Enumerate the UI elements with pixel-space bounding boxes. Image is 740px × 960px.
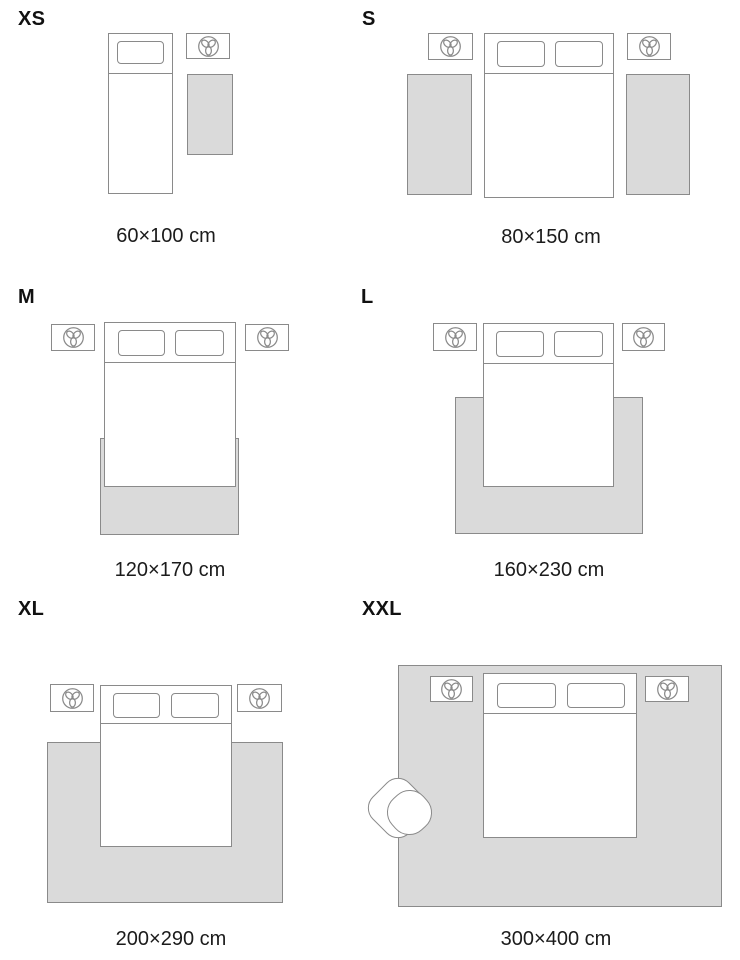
double-bed	[104, 322, 236, 487]
pillow-right	[175, 330, 224, 356]
plant-icon	[656, 678, 679, 701]
nightstand-right	[627, 33, 671, 60]
bed-headboard	[109, 34, 172, 74]
single-bed	[108, 33, 173, 194]
nightstand-left	[430, 676, 473, 702]
nightstand	[186, 33, 230, 59]
size-label-xs: XS	[18, 8, 45, 30]
double-bed	[100, 685, 232, 847]
size-caption-s: 80×150 cm	[501, 226, 601, 248]
pillow-left	[496, 331, 544, 357]
size-caption-m: 120×170 cm	[115, 559, 226, 581]
pillow-right	[555, 41, 603, 67]
plant-icon	[632, 326, 655, 349]
size-caption-xs: 60×100 cm	[116, 225, 216, 247]
plant-icon	[256, 326, 279, 349]
plant-icon	[439, 35, 462, 58]
nightstand-right	[645, 676, 689, 702]
plant-icon	[62, 326, 85, 349]
pillow-left	[497, 683, 556, 708]
pillow-left	[118, 330, 165, 356]
rug-size-guide: XS 60×100 cm S 80×150 cm	[0, 0, 740, 960]
double-bed	[484, 33, 614, 198]
plant-icon	[440, 678, 463, 701]
nightstand-right	[245, 324, 289, 351]
pillow	[117, 41, 164, 64]
rug-s-right	[626, 74, 690, 195]
plant-icon	[61, 687, 84, 710]
bed-headboard	[484, 324, 613, 364]
size-label-s: S	[362, 8, 376, 30]
size-label-xl: XL	[18, 598, 44, 620]
nightstand-right	[622, 323, 665, 351]
pillow-left	[497, 41, 545, 67]
pillow-right	[554, 331, 603, 357]
plant-icon	[248, 687, 271, 710]
bed-headboard	[105, 323, 235, 363]
plant-icon	[638, 35, 661, 58]
pillow-left	[113, 693, 160, 718]
nightstand-left	[428, 33, 473, 60]
nightstand-left	[50, 684, 94, 712]
nightstand-right	[237, 684, 282, 712]
plant-icon	[444, 326, 467, 349]
size-caption-l: 160×230 cm	[494, 559, 605, 581]
size-label-l: L	[361, 286, 374, 308]
size-caption-xl: 200×290 cm	[116, 928, 227, 950]
double-bed	[483, 323, 614, 487]
nightstand-left	[433, 323, 477, 351]
size-label-xxl: XXL	[362, 598, 402, 620]
size-label-m: M	[18, 286, 35, 308]
pillow-right	[567, 683, 625, 708]
size-caption-xxl: 300×400 cm	[501, 928, 612, 950]
bed-headboard	[484, 674, 636, 714]
plant-icon	[197, 35, 220, 58]
bed-headboard	[101, 686, 231, 724]
rug-xs	[187, 74, 233, 155]
pillow-right	[171, 693, 219, 718]
bed-headboard	[485, 34, 613, 74]
double-bed	[483, 673, 637, 838]
nightstand-left	[51, 324, 95, 351]
rug-s-left	[407, 74, 472, 195]
